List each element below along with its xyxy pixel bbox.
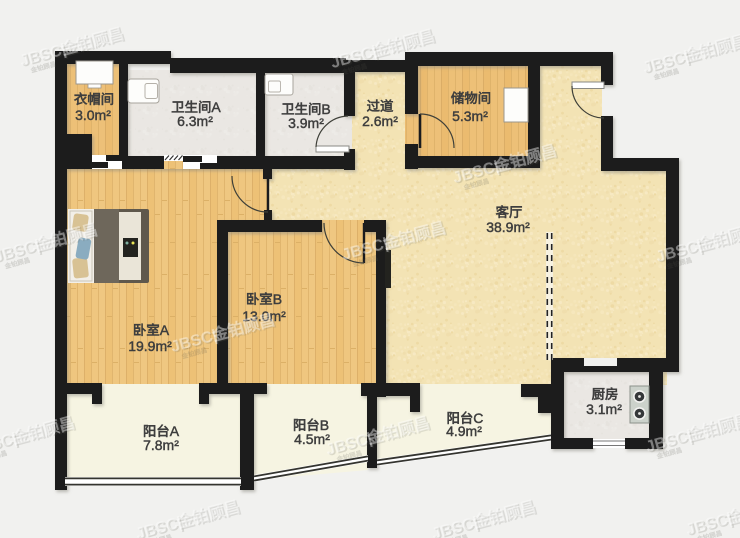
svg-text:3.0m²: 3.0m² [75,107,111,123]
svg-text:B: B [273,291,282,307]
svg-text:3.1m²: 3.1m² [586,401,622,417]
svg-text:A: A [160,322,170,338]
svg-text:3.9m²: 3.9m² [288,115,324,131]
svg-text:5.3m²: 5.3m² [452,108,488,124]
svg-text:38.9m²: 38.9m² [486,219,530,235]
svg-text:6.3m²: 6.3m² [177,113,213,129]
svg-text:7.8m²: 7.8m² [143,437,179,453]
svg-text:19.9m²: 19.9m² [128,338,172,354]
svg-text:4.9m²: 4.9m² [446,423,482,439]
svg-text:2.6m²: 2.6m² [362,113,398,129]
